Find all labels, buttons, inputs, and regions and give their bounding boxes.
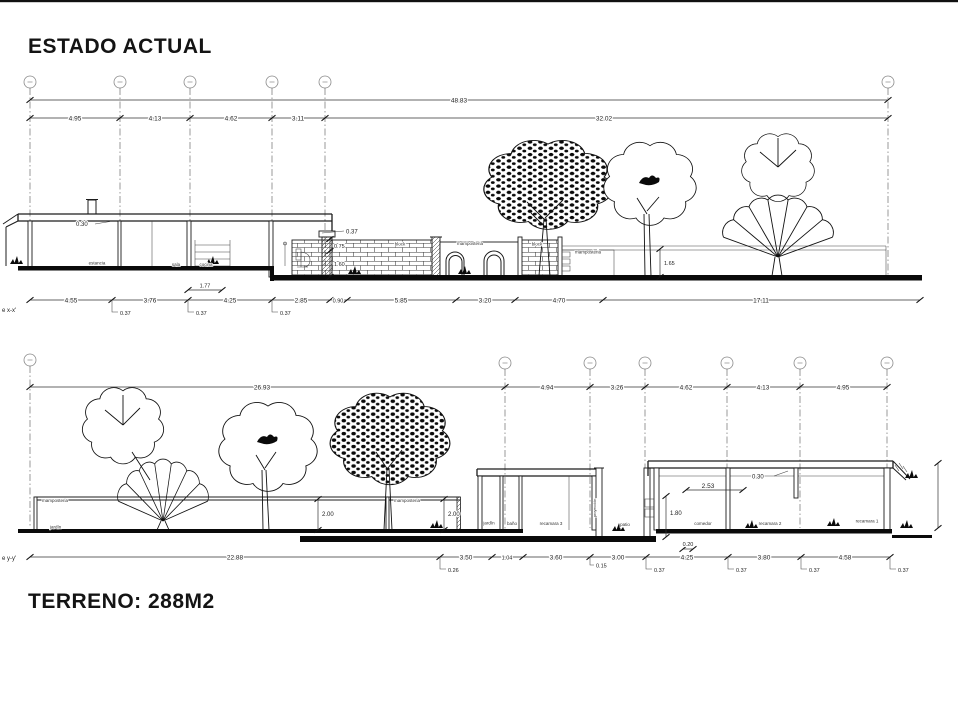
cut-line-label: e y-y': [2, 556, 16, 562]
dim-label: 3.00: [612, 554, 625, 561]
dim-label: 4.13: [757, 384, 770, 391]
eave-dim: 2.53: [702, 483, 715, 490]
masonry-wall: [440, 242, 520, 277]
step-dim: 0.20: [683, 542, 694, 548]
wall-material-label: mamposteria: [575, 250, 602, 255]
dim-label: 3.60: [550, 554, 563, 561]
column: [884, 468, 890, 530]
dim-label: 1.04: [502, 555, 513, 561]
wall-post: [34, 497, 37, 530]
dim-label: 3.20: [479, 298, 492, 305]
dim-label: 32.02: [596, 115, 613, 122]
wall-dim: 1.60: [334, 262, 345, 268]
cap-dim: 0.37: [346, 230, 358, 236]
drawing-sheet: ESTADO ACTUAL TERRENO: 288M2 48.83 4.95 …: [0, 0, 958, 722]
sub-dim-label: 0.37: [898, 568, 909, 574]
roof-dim: 0.30: [752, 475, 764, 481]
dim-label: 22.88: [227, 554, 244, 561]
column: [654, 468, 659, 530]
dim-label: 4.58: [839, 554, 852, 561]
dim-label: 2.85: [295, 298, 308, 305]
sub-dim-label: 0.37: [280, 311, 291, 317]
sub-dim-label: 0.37: [809, 568, 820, 574]
column: [500, 476, 503, 530]
dim-label: 5.85: [395, 298, 408, 305]
room-label: estancia: [89, 261, 106, 266]
dim-label: 4.94: [541, 384, 554, 391]
wall-post: [386, 497, 389, 530]
wall-material-label: mamposteria: [394, 498, 421, 503]
dim-label: 3.76: [144, 298, 157, 305]
dim-label: 4.62: [225, 115, 238, 122]
dim-label: 4.55: [65, 298, 78, 305]
column: [726, 468, 730, 530]
dim-label: 48.83: [451, 97, 468, 104]
dim-label: 4.70: [553, 298, 566, 305]
sub-dim-label: 0.37: [654, 568, 665, 574]
block-wall: [292, 240, 432, 277]
dim-label: 1.77: [200, 284, 211, 290]
room-label: recamara 1: [856, 519, 879, 524]
wall-height-dim: 2.00: [322, 512, 334, 518]
wall-material-label: mamposteria: [457, 241, 484, 246]
terrain-label: TERRENO: 288M2: [28, 590, 215, 613]
wall-material-label: block: [532, 242, 543, 247]
room-label: recamara 2: [759, 521, 782, 526]
patio-height-dim: 1.80: [670, 511, 682, 517]
wall-height-dim: 2.00: [448, 512, 460, 518]
dim-label: 3.50: [460, 554, 473, 561]
wall-post: [558, 237, 562, 277]
sub-dim-label: 0.15: [596, 564, 607, 570]
sub-dim-label: 0.26: [448, 568, 459, 574]
wall-post: [432, 237, 440, 277]
dim-label: 4.25: [681, 554, 694, 561]
dim-label: 3.80: [758, 554, 771, 561]
wall-dim: 1.65: [664, 261, 675, 267]
projection-label: proyección: [593, 499, 597, 517]
dim-label: 4.62: [680, 384, 693, 391]
cut-line-label: e x-x': [2, 308, 16, 314]
dim-label: 0.90: [333, 299, 344, 305]
dim-label: 3.11: [292, 115, 305, 122]
dim-label: 4.95: [69, 115, 82, 122]
wall-dim: 0.75: [334, 244, 345, 250]
wall-post: [518, 237, 522, 277]
sheet-background: [0, 0, 958, 722]
room-label: sala: [172, 262, 181, 267]
room-label: cocina: [199, 262, 213, 267]
room-label: recamara 3: [540, 521, 563, 526]
dim-label: 3.26: [611, 384, 624, 391]
sub-dim-label: 0.37: [736, 568, 747, 574]
garden-label: jardín: [49, 525, 62, 530]
sub-dim-label: 0.37: [120, 311, 131, 317]
drawing-title: ESTADO ACTUAL: [28, 35, 212, 58]
column: [187, 221, 191, 267]
column: [28, 221, 32, 267]
column: [478, 476, 482, 530]
dim-label: 4.95: [837, 384, 850, 391]
sub-dim-label: 0.37: [196, 311, 207, 317]
room-label: patio: [620, 522, 630, 527]
sheet-top-border: [0, 0, 958, 2]
column: [118, 221, 121, 267]
wall-stub: [794, 468, 798, 498]
architectural-drawing: ESTADO ACTUAL TERRENO: 288M2 48.83 4.95 …: [0, 0, 958, 722]
dim-label: 26.93: [254, 384, 271, 391]
column: [519, 476, 522, 530]
dim-label: 4.25: [224, 298, 237, 305]
wall-material-label: block: [395, 242, 406, 247]
dim-label: 17.11: [753, 298, 769, 305]
roof-dim: 0.30: [76, 222, 88, 228]
dim-label: 4.13: [149, 115, 162, 122]
room-label: baño: [507, 521, 518, 526]
room-label: jardín: [482, 521, 495, 526]
room-label: comedor: [694, 521, 712, 526]
wall-material-label: mamposteria: [42, 498, 69, 503]
